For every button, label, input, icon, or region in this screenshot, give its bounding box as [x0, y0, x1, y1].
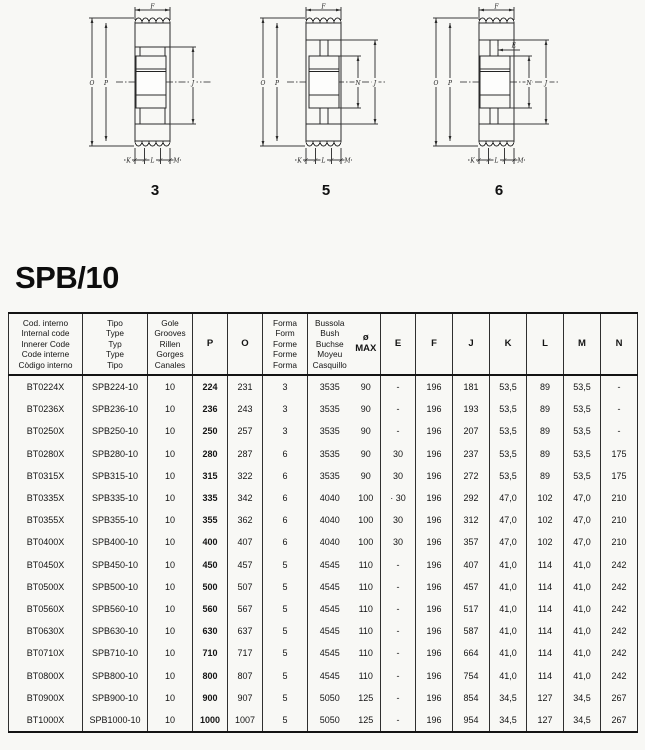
dim-label-O: O: [261, 80, 266, 87]
cell-code: BT0355X: [9, 509, 83, 531]
cell-l: 102: [527, 509, 564, 531]
cell-type: SPB236-10: [83, 398, 148, 420]
dim-label-F: F: [493, 4, 499, 11]
cell-k: 47,0: [490, 509, 527, 531]
spec-table: Cod. interno Internal code Innerer Code …: [8, 312, 638, 733]
cell-e: 30: [381, 509, 416, 531]
pulley-diagram-form-5: F O P N J K L M 5: [251, 2, 401, 199]
col-header-type: Tipo Type Typ Type Tipo: [83, 313, 148, 375]
cell-bush: 4545: [308, 576, 352, 598]
cell-p: 710: [193, 642, 228, 664]
cell-f: 196: [416, 465, 453, 487]
cell-k: 53,5: [490, 420, 527, 442]
pulley-section-drawing-5: F O P N J K L M: [251, 2, 401, 170]
cell-code: BT0900X: [9, 687, 83, 709]
cell-j: 292: [453, 487, 490, 509]
cell-k: 41,0: [490, 642, 527, 664]
table-row: BT0236XSPB236-10102362433353590-19619353…: [9, 398, 638, 420]
cell-f: 196: [416, 443, 453, 465]
cell-bush: 3535: [308, 465, 352, 487]
cell-o: 637: [228, 620, 263, 642]
cell-e: -: [381, 420, 416, 442]
cell-k: 47,0: [490, 487, 527, 509]
cell-e: -: [381, 687, 416, 709]
cell-m: 41,0: [564, 642, 601, 664]
cell-bush: 3535: [308, 443, 352, 465]
pulley-diagram-form-3: F O P J K L M 3: [80, 2, 230, 199]
col-header-m: M: [564, 313, 601, 375]
cell-f: 196: [416, 598, 453, 620]
cell-k: 53,5: [490, 443, 527, 465]
cell-m: 34,5: [564, 687, 601, 709]
cell-e: -: [381, 642, 416, 664]
cell-max: 90: [352, 465, 381, 487]
cell-type: SPB335-10: [83, 487, 148, 509]
cell-l: 127: [527, 709, 564, 732]
cell-type: SPB400-10: [83, 531, 148, 553]
form-number-6: 6: [424, 182, 574, 199]
cell-k: 41,0: [490, 664, 527, 686]
cell-l: 89: [527, 398, 564, 420]
cell-m: 47,0: [564, 531, 601, 553]
cell-form: 6: [263, 487, 308, 509]
cell-o: 231: [228, 375, 263, 398]
cell-j: 237: [453, 443, 490, 465]
cell-m: 34,5: [564, 709, 601, 732]
col-header-form: Forma Form Forme Forme Forma: [263, 313, 308, 375]
cell-type: SPB280-10: [83, 443, 148, 465]
cell-grooves: 10: [148, 487, 193, 509]
cell-p: 355: [193, 509, 228, 531]
cell-code: BT0800X: [9, 664, 83, 686]
table-row: BT0560XSPB560-101056056754545110-1965174…: [9, 598, 638, 620]
col-header-bush: Bussola Bush Buchse Moyeu Casquillo: [308, 313, 352, 375]
cell-k: 41,0: [490, 598, 527, 620]
cell-grooves: 10: [148, 375, 193, 398]
table-row: BT0355XSPB355-10103553626404010030196312…: [9, 509, 638, 531]
cell-n: 175: [601, 465, 638, 487]
cell-l: 89: [527, 443, 564, 465]
table-row: BT0900XSPB900-101090090755050125-1968543…: [9, 687, 638, 709]
cell-j: 954: [453, 709, 490, 732]
cell-max: 90: [352, 398, 381, 420]
cell-type: SPB1000-10: [83, 709, 148, 732]
cell-form: 6: [263, 443, 308, 465]
cell-bush: 5050: [308, 709, 352, 732]
cell-code: BT0236X: [9, 398, 83, 420]
cell-max: 110: [352, 664, 381, 686]
cell-o: 1007: [228, 709, 263, 732]
cell-k: 34,5: [490, 709, 527, 732]
cell-max: 110: [352, 642, 381, 664]
table-row: BT0400XSPB400-10104004076404010030196357…: [9, 531, 638, 553]
cell-o: 907: [228, 687, 263, 709]
cell-bush: 4040: [308, 509, 352, 531]
cell-code: BT0280X: [9, 443, 83, 465]
cell-max: 110: [352, 598, 381, 620]
cell-max: 110: [352, 620, 381, 642]
cell-n: 267: [601, 687, 638, 709]
cell-p: 250: [193, 420, 228, 442]
cell-m: 47,0: [564, 487, 601, 509]
cell-type: SPB224-10: [83, 375, 148, 398]
cell-bush: 4040: [308, 531, 352, 553]
cell-grooves: 10: [148, 620, 193, 642]
table-row: BT0280XSPB280-10102802876353590301962375…: [9, 443, 638, 465]
form-number-5: 5: [251, 182, 401, 199]
cell-f: 196: [416, 687, 453, 709]
table-row: BT0224XSPB224-10102242313353590-19618153…: [9, 375, 638, 398]
cell-code: BT0250X: [9, 420, 83, 442]
col-header-p: P: [193, 313, 228, 375]
dim-label-M: M: [343, 158, 351, 165]
cell-l: 102: [527, 531, 564, 553]
cell-e: 30: [381, 443, 416, 465]
col-header-f: F: [416, 313, 453, 375]
cell-o: 507: [228, 576, 263, 598]
cell-e: 30: [381, 531, 416, 553]
cell-m: 47,0: [564, 509, 601, 531]
cell-e: -: [381, 598, 416, 620]
cell-n: 242: [601, 642, 638, 664]
cell-n: 210: [601, 531, 638, 553]
cell-type: SPB500-10: [83, 576, 148, 598]
cell-o: 567: [228, 598, 263, 620]
cell-k: 41,0: [490, 576, 527, 598]
cell-grooves: 10: [148, 709, 193, 732]
cell-l: 114: [527, 598, 564, 620]
cell-p: 236: [193, 398, 228, 420]
cell-j: 207: [453, 420, 490, 442]
cell-m: 53,5: [564, 420, 601, 442]
dim-label-L: L: [321, 158, 326, 165]
cell-n: 242: [601, 576, 638, 598]
cell-l: 114: [527, 664, 564, 686]
cell-e: -: [381, 554, 416, 576]
cell-f: 196: [416, 576, 453, 598]
table-row: BT0335XSPB335-101033534264040100· 301962…: [9, 487, 638, 509]
cell-n: 242: [601, 554, 638, 576]
table-body: BT0224XSPB224-10102242313353590-19618153…: [9, 375, 638, 732]
cell-bush: 4545: [308, 554, 352, 576]
cell-n: 175: [601, 443, 638, 465]
cell-form: 5: [263, 620, 308, 642]
dim-label-F: F: [149, 4, 155, 11]
cell-bush: 4545: [308, 598, 352, 620]
cell-grooves: 10: [148, 687, 193, 709]
cell-form: 5: [263, 598, 308, 620]
cell-type: SPB800-10: [83, 664, 148, 686]
cell-bush: 3535: [308, 398, 352, 420]
cell-m: 41,0: [564, 620, 601, 642]
cell-form: 5: [263, 642, 308, 664]
cell-type: SPB710-10: [83, 642, 148, 664]
table-row: BT0315XSPB315-10103153226353590301962725…: [9, 465, 638, 487]
dim-label-F: F: [320, 4, 326, 11]
cell-form: 5: [263, 687, 308, 709]
cell-l: 127: [527, 687, 564, 709]
cell-o: 807: [228, 664, 263, 686]
cell-code: BT0335X: [9, 487, 83, 509]
cell-e: · 30: [381, 487, 416, 509]
table-row: BT0630XSPB630-101063063754545110-1965874…: [9, 620, 638, 642]
table-row: BT1000XSPB1000-10101000100755050125-1969…: [9, 709, 638, 732]
cell-j: 754: [453, 664, 490, 686]
cell-m: 53,5: [564, 465, 601, 487]
cell-form: 6: [263, 531, 308, 553]
cell-code: BT0450X: [9, 554, 83, 576]
cell-o: 287: [228, 443, 263, 465]
cell-max: 125: [352, 687, 381, 709]
dim-label-O: O: [90, 80, 95, 87]
cell-m: 53,5: [564, 398, 601, 420]
dim-label-K: K: [469, 158, 475, 165]
cell-grooves: 10: [148, 576, 193, 598]
dim-label-O: O: [434, 80, 439, 87]
cell-e: -: [381, 398, 416, 420]
cell-k: 34,5: [490, 687, 527, 709]
cell-p: 280: [193, 443, 228, 465]
cell-l: 102: [527, 487, 564, 509]
cell-o: 407: [228, 531, 263, 553]
cell-code: BT1000X: [9, 709, 83, 732]
cell-form: 5: [263, 664, 308, 686]
dim-label-K: K: [296, 158, 302, 165]
table-header: Cod. interno Internal code Innerer Code …: [9, 313, 638, 375]
cell-p: 315: [193, 465, 228, 487]
cell-form: 3: [263, 420, 308, 442]
cell-j: 407: [453, 554, 490, 576]
col-header-o: O: [228, 313, 263, 375]
cell-e: -: [381, 620, 416, 642]
cell-grooves: 10: [148, 509, 193, 531]
cell-m: 53,5: [564, 443, 601, 465]
cell-max: 100: [352, 509, 381, 531]
cell-bush: 3535: [308, 375, 352, 398]
cell-j: 193: [453, 398, 490, 420]
cell-code: BT0400X: [9, 531, 83, 553]
cell-bush: 4040: [308, 487, 352, 509]
form-number-3: 3: [80, 182, 230, 199]
cell-type: SPB560-10: [83, 598, 148, 620]
cell-p: 800: [193, 664, 228, 686]
cell-n: 242: [601, 598, 638, 620]
cell-o: 257: [228, 420, 263, 442]
cell-f: 196: [416, 531, 453, 553]
cell-m: 41,0: [564, 664, 601, 686]
cell-f: 196: [416, 509, 453, 531]
cell-f: 196: [416, 642, 453, 664]
cell-form: 6: [263, 509, 308, 531]
cell-code: BT0500X: [9, 576, 83, 598]
cell-j: 664: [453, 642, 490, 664]
cell-k: 53,5: [490, 465, 527, 487]
cell-o: 243: [228, 398, 263, 420]
cell-n: -: [601, 420, 638, 442]
col-header-max: ø MAX: [352, 313, 381, 375]
cell-f: 196: [416, 664, 453, 686]
cell-form: 3: [263, 398, 308, 420]
cell-code: BT0224X: [9, 375, 83, 398]
pulley-section-drawing-3: F O P J K L M: [80, 2, 230, 170]
cell-m: 41,0: [564, 554, 601, 576]
cell-k: 41,0: [490, 554, 527, 576]
cell-code: BT0710X: [9, 642, 83, 664]
cell-type: SPB250-10: [83, 420, 148, 442]
cell-l: 114: [527, 642, 564, 664]
col-header-l: L: [527, 313, 564, 375]
cell-grooves: 10: [148, 598, 193, 620]
dim-label-L: L: [150, 158, 155, 165]
cell-bush: 5050: [308, 687, 352, 709]
cell-grooves: 10: [148, 531, 193, 553]
cell-grooves: 10: [148, 554, 193, 576]
cell-p: 335: [193, 487, 228, 509]
cell-f: 196: [416, 709, 453, 732]
col-header-grooves: Gole Grooves Rillen Gorges Canales: [148, 313, 193, 375]
cell-j: 854: [453, 687, 490, 709]
cell-p: 224: [193, 375, 228, 398]
cell-grooves: 10: [148, 420, 193, 442]
cell-m: 53,5: [564, 375, 601, 398]
cell-o: 342: [228, 487, 263, 509]
cell-type: SPB630-10: [83, 620, 148, 642]
cell-form: 5: [263, 576, 308, 598]
cell-p: 500: [193, 576, 228, 598]
cell-m: 41,0: [564, 576, 601, 598]
cell-o: 362: [228, 509, 263, 531]
col-header-j: J: [453, 313, 490, 375]
cell-n: 210: [601, 487, 638, 509]
cell-n: 242: [601, 664, 638, 686]
cell-p: 560: [193, 598, 228, 620]
cell-max: 125: [352, 709, 381, 732]
col-header-n: N: [601, 313, 638, 375]
cell-p: 630: [193, 620, 228, 642]
cell-e: 30: [381, 465, 416, 487]
dim-label-N: N: [354, 80, 361, 87]
header-row: Cod. interno Internal code Innerer Code …: [9, 313, 638, 375]
cell-m: 41,0: [564, 598, 601, 620]
cell-grooves: 10: [148, 398, 193, 420]
cell-p: 1000: [193, 709, 228, 732]
dim-label-N: N: [525, 80, 532, 87]
cell-max: 90: [352, 443, 381, 465]
cell-k: 47,0: [490, 531, 527, 553]
cell-o: 322: [228, 465, 263, 487]
cell-n: -: [601, 375, 638, 398]
dim-label-E: E: [511, 43, 517, 50]
table-row: BT0800XSPB800-101080080754545110-1967544…: [9, 664, 638, 686]
cell-o: 717: [228, 642, 263, 664]
cell-max: 90: [352, 420, 381, 442]
cell-e: -: [381, 576, 416, 598]
cell-j: 517: [453, 598, 490, 620]
dim-label-L: L: [494, 158, 499, 165]
cell-l: 89: [527, 375, 564, 398]
cell-p: 400: [193, 531, 228, 553]
cell-f: 196: [416, 554, 453, 576]
cell-bush: 3535: [308, 420, 352, 442]
page-title: SPB/10: [15, 260, 119, 296]
cell-e: -: [381, 709, 416, 732]
dim-label-K: K: [125, 158, 131, 165]
dim-label-M: M: [516, 158, 524, 165]
pulley-section-drawing-6: F E O P N J K L M: [424, 2, 574, 170]
cell-l: 114: [527, 554, 564, 576]
cell-f: 196: [416, 420, 453, 442]
cell-form: 3: [263, 375, 308, 398]
table-row: BT0250XSPB250-10102502573353590-19620753…: [9, 420, 638, 442]
cell-form: 6: [263, 465, 308, 487]
cell-l: 89: [527, 420, 564, 442]
cell-grooves: 10: [148, 642, 193, 664]
cell-f: 196: [416, 487, 453, 509]
cell-max: 90: [352, 375, 381, 398]
cell-j: 457: [453, 576, 490, 598]
cell-bush: 4545: [308, 664, 352, 686]
cell-max: 110: [352, 554, 381, 576]
cell-n: -: [601, 398, 638, 420]
cell-type: SPB900-10: [83, 687, 148, 709]
cell-bush: 4545: [308, 620, 352, 642]
dim-label-M: M: [172, 158, 180, 165]
cell-j: 587: [453, 620, 490, 642]
cell-l: 114: [527, 576, 564, 598]
table-row: BT0450XSPB450-101045045754545110-1964074…: [9, 554, 638, 576]
cell-e: -: [381, 375, 416, 398]
cell-n: 242: [601, 620, 638, 642]
cell-max: 100: [352, 487, 381, 509]
cell-f: 196: [416, 620, 453, 642]
cell-p: 450: [193, 554, 228, 576]
cell-l: 89: [527, 465, 564, 487]
cell-form: 5: [263, 554, 308, 576]
cell-code: BT0630X: [9, 620, 83, 642]
cell-j: 272: [453, 465, 490, 487]
cell-j: 357: [453, 531, 490, 553]
cell-type: SPB450-10: [83, 554, 148, 576]
cell-o: 457: [228, 554, 263, 576]
cell-max: 100: [352, 531, 381, 553]
table-row: BT0500XSPB500-101050050754545110-1964574…: [9, 576, 638, 598]
cell-grooves: 10: [148, 443, 193, 465]
cell-j: 312: [453, 509, 490, 531]
cell-type: SPB355-10: [83, 509, 148, 531]
pulley-diagram-form-6: F E O P N J K L M: [424, 2, 574, 199]
cell-f: 196: [416, 375, 453, 398]
cell-code: BT0315X: [9, 465, 83, 487]
cell-e: -: [381, 664, 416, 686]
col-header-code: Cod. interno Internal code Innerer Code …: [9, 313, 83, 375]
cell-grooves: 10: [148, 465, 193, 487]
cell-f: 196: [416, 398, 453, 420]
table-row: BT0710XSPB710-101071071754545110-1966644…: [9, 642, 638, 664]
cell-k: 41,0: [490, 620, 527, 642]
cell-form: 5: [263, 709, 308, 732]
col-header-e: E: [381, 313, 416, 375]
cell-bush: 4545: [308, 642, 352, 664]
cell-n: 210: [601, 509, 638, 531]
cell-n: 267: [601, 709, 638, 732]
cell-l: 114: [527, 620, 564, 642]
cell-k: 53,5: [490, 398, 527, 420]
cell-type: SPB315-10: [83, 465, 148, 487]
cell-code: BT0560X: [9, 598, 83, 620]
cell-p: 900: [193, 687, 228, 709]
cell-k: 53,5: [490, 375, 527, 398]
cell-j: 181: [453, 375, 490, 398]
